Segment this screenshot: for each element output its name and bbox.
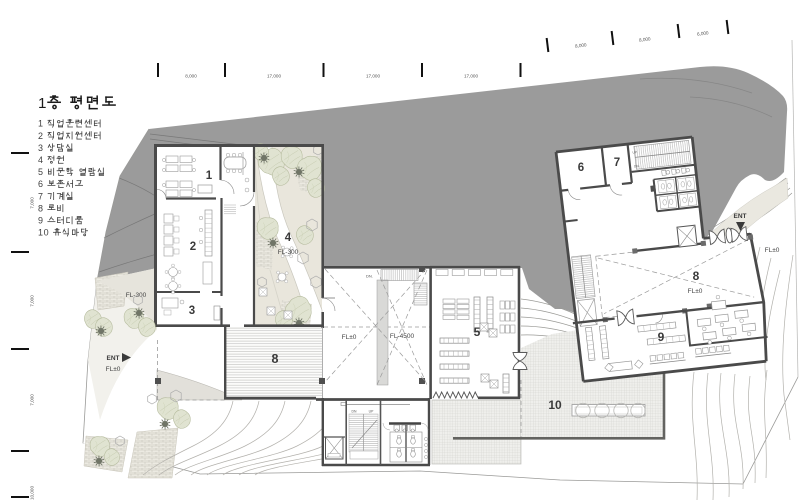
- svg-text:1: 1: [38, 119, 43, 129]
- svg-text:FL-4500: FL-4500: [390, 333, 415, 340]
- svg-text:10: 10: [548, 398, 562, 412]
- svg-text:8: 8: [693, 269, 700, 283]
- svg-text:FL-300: FL-300: [126, 292, 147, 299]
- svg-text:8: 8: [272, 352, 279, 366]
- svg-text:7,000: 7,000: [30, 197, 35, 209]
- svg-text:0: 0: [44, 228, 49, 238]
- svg-text:DN.: DN.: [634, 164, 640, 169]
- svg-text:10,000: 10,000: [30, 486, 35, 500]
- svg-text:4: 4: [38, 155, 43, 165]
- svg-text:17,000: 17,000: [464, 74, 478, 79]
- svg-text:ENT: ENT: [734, 213, 747, 220]
- svg-text:7,000: 7,000: [30, 394, 35, 406]
- svg-text:2: 2: [190, 241, 196, 253]
- svg-text:5: 5: [474, 325, 481, 339]
- svg-text:8: 8: [38, 203, 43, 213]
- svg-text:1: 1: [38, 228, 43, 238]
- svg-text:ENT: ENT: [107, 355, 120, 362]
- svg-text:3: 3: [38, 143, 43, 153]
- svg-text:7,000: 7,000: [30, 295, 35, 307]
- svg-text:9: 9: [38, 215, 43, 225]
- svg-text:4: 4: [285, 232, 292, 244]
- svg-text:DN: DN: [352, 410, 357, 414]
- svg-text:9: 9: [658, 330, 665, 344]
- svg-text:DN.: DN.: [366, 274, 373, 279]
- svg-text:FL±0: FL±0: [342, 334, 357, 341]
- svg-text:1: 1: [38, 95, 46, 112]
- svg-text:2: 2: [38, 131, 43, 141]
- svg-text:6: 6: [38, 179, 43, 189]
- svg-text:FL±0: FL±0: [106, 366, 121, 373]
- svg-text:5: 5: [38, 167, 43, 177]
- svg-text:3: 3: [189, 305, 195, 317]
- svg-text:17,000: 17,000: [366, 74, 380, 79]
- svg-text:FL-300: FL-300: [278, 249, 299, 256]
- svg-text:UP: UP: [369, 410, 374, 414]
- svg-text:8,000: 8,000: [185, 74, 197, 79]
- svg-text:FL±0: FL±0: [765, 247, 780, 254]
- svg-text:7: 7: [614, 157, 620, 169]
- svg-text:FL±0: FL±0: [688, 288, 703, 295]
- svg-text:6: 6: [578, 162, 584, 174]
- svg-text:1: 1: [206, 170, 213, 182]
- svg-text:7: 7: [38, 191, 43, 201]
- svg-text:UP.: UP.: [632, 150, 637, 155]
- svg-text:17,000: 17,000: [267, 74, 281, 79]
